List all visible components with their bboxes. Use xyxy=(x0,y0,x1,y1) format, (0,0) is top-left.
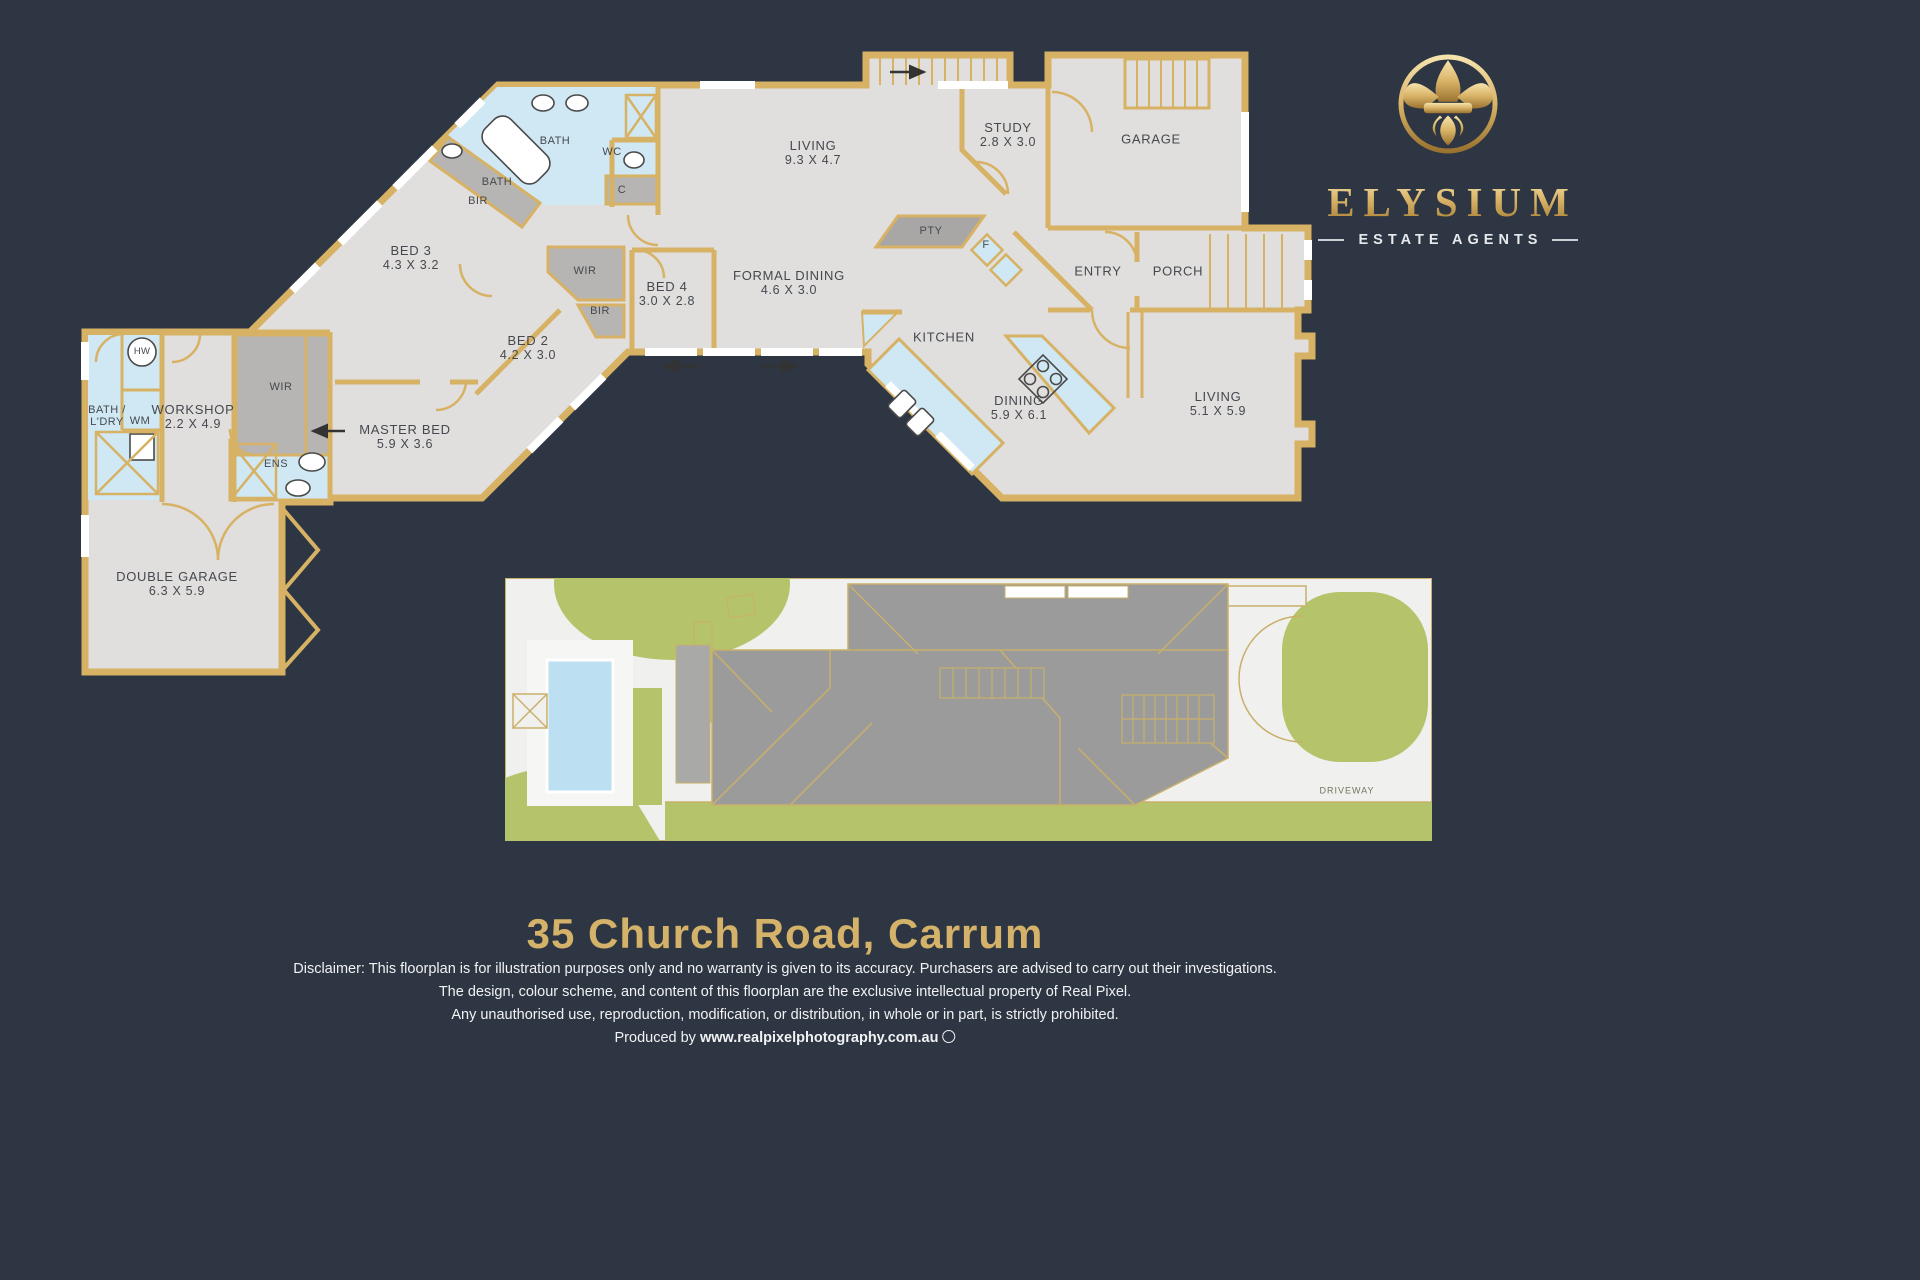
disclaimer-line-2: The design, colour scheme, and content o… xyxy=(293,981,1277,1004)
garage-gate-zigzag xyxy=(284,510,318,668)
basin xyxy=(532,95,554,111)
ens-toilet xyxy=(286,480,310,496)
property-address-title: 35 Church Road, Carrum xyxy=(527,910,1044,958)
floorplan-drawing xyxy=(0,0,1920,1280)
skylight xyxy=(1005,586,1065,598)
shed xyxy=(676,645,710,783)
logo-brand-name: ELYSIUM xyxy=(1318,178,1578,226)
toilet xyxy=(624,152,644,168)
basin xyxy=(566,95,588,111)
tagline-dash-left xyxy=(1318,239,1344,241)
hot-water-unit xyxy=(128,338,156,366)
logo-tagline: ESTATE AGENTS xyxy=(1318,232,1579,248)
agency-logo: ELYSIUM ESTATE AGENTS xyxy=(1278,22,1618,248)
tagline-dash-right xyxy=(1552,239,1578,241)
basin xyxy=(442,144,462,158)
utility-square xyxy=(513,694,547,728)
produced-prefix: Produced by xyxy=(615,1030,700,1046)
disclaimer-line-3: Any unauthorised use, reproduction, modi… xyxy=(293,1004,1277,1027)
logo-tagline-text: ESTATE AGENTS xyxy=(1354,232,1543,248)
wir-left-robe xyxy=(236,335,330,455)
ens-basin xyxy=(299,453,325,471)
disclaimer-line-1: Disclaimer: This floorplan is for illust… xyxy=(293,958,1277,981)
flyer-canvas: BATH WC C BATH BIR BED 34.3 X 3.2 WIR BI… xyxy=(0,0,1920,1280)
producer-url: www.realpixelphotography.com.au xyxy=(700,1030,939,1046)
producer-badge-icon xyxy=(942,1030,955,1043)
disclaimer-block: Disclaimer: This floorplan is for illust… xyxy=(293,958,1277,1050)
site-plan xyxy=(505,508,1432,841)
pool xyxy=(547,660,613,792)
skylight xyxy=(1068,586,1128,598)
disclaimer-produced-line: Produced by www.realpixelphotography.com… xyxy=(293,1027,1277,1050)
